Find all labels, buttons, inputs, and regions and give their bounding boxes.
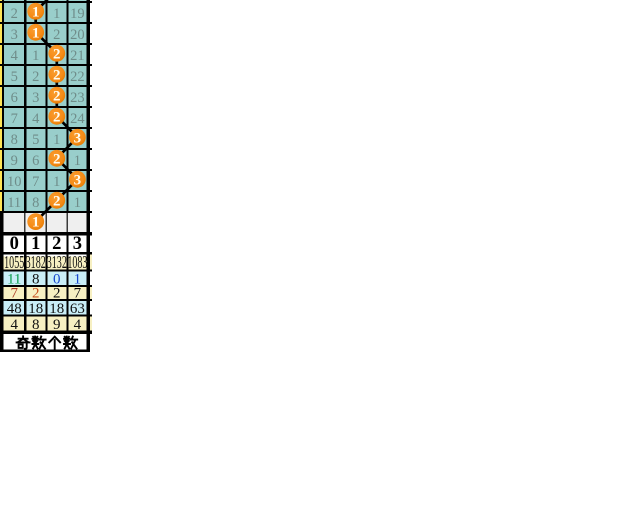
svg-text:10: 10 bbox=[7, 174, 22, 190]
svg-text:8: 8 bbox=[32, 195, 39, 211]
svg-text:1: 1 bbox=[32, 48, 39, 64]
svg-text:2: 2 bbox=[53, 193, 61, 209]
svg-text:23: 23 bbox=[70, 90, 85, 106]
svg-text:3132: 3132 bbox=[47, 253, 67, 273]
svg-text:2: 2 bbox=[32, 69, 39, 85]
svg-text:3: 3 bbox=[73, 234, 82, 254]
svg-text:48: 48 bbox=[7, 301, 22, 317]
svg-text:2: 2 bbox=[52, 234, 61, 254]
svg-text:20: 20 bbox=[70, 27, 85, 43]
svg-text:2: 2 bbox=[11, 6, 18, 22]
svg-text:9: 9 bbox=[53, 317, 61, 333]
svg-text:2: 2 bbox=[53, 151, 61, 167]
svg-text:4: 4 bbox=[10, 317, 18, 333]
svg-text:1: 1 bbox=[31, 234, 40, 254]
svg-text:11: 11 bbox=[7, 195, 21, 211]
svg-text:6: 6 bbox=[11, 90, 18, 106]
svg-text:1: 1 bbox=[74, 153, 81, 169]
svg-text:21: 21 bbox=[70, 48, 85, 64]
svg-text:5: 5 bbox=[11, 69, 18, 85]
svg-text:1: 1 bbox=[53, 6, 60, 22]
svg-text:0: 0 bbox=[10, 234, 19, 254]
svg-text:1055: 1055 bbox=[4, 253, 24, 273]
svg-text:7: 7 bbox=[11, 111, 18, 127]
svg-text:1: 1 bbox=[32, 25, 40, 41]
svg-text:8: 8 bbox=[11, 132, 18, 148]
svg-text:18: 18 bbox=[49, 301, 64, 317]
svg-text:2: 2 bbox=[53, 88, 61, 104]
svg-text:4: 4 bbox=[74, 317, 82, 333]
svg-text:3: 3 bbox=[32, 90, 39, 106]
svg-text:3: 3 bbox=[74, 130, 82, 146]
svg-text:2: 2 bbox=[53, 67, 61, 83]
svg-text:2: 2 bbox=[53, 286, 61, 302]
svg-text:22: 22 bbox=[70, 69, 85, 85]
svg-text:3: 3 bbox=[74, 172, 82, 188]
svg-text:2: 2 bbox=[53, 109, 61, 125]
svg-text:1083: 1083 bbox=[67, 253, 87, 273]
svg-text:2: 2 bbox=[32, 286, 40, 302]
svg-text:2: 2 bbox=[53, 46, 61, 62]
svg-text:24: 24 bbox=[70, 111, 85, 127]
svg-text:3: 3 bbox=[11, 27, 18, 43]
svg-text:7: 7 bbox=[32, 174, 39, 190]
svg-text:7: 7 bbox=[74, 286, 82, 302]
svg-text:63: 63 bbox=[70, 301, 85, 317]
svg-text:6: 6 bbox=[32, 153, 39, 169]
svg-text:1: 1 bbox=[53, 174, 60, 190]
svg-text:7: 7 bbox=[10, 286, 18, 302]
svg-text:18: 18 bbox=[28, 301, 43, 317]
svg-text:1: 1 bbox=[74, 195, 81, 211]
svg-text:1: 1 bbox=[53, 132, 60, 148]
svg-text:9: 9 bbox=[11, 153, 18, 169]
svg-text:2: 2 bbox=[53, 27, 60, 43]
svg-text:5: 5 bbox=[32, 132, 39, 148]
svg-text:1: 1 bbox=[32, 215, 40, 231]
svg-text:19: 19 bbox=[70, 6, 85, 22]
svg-text:3182: 3182 bbox=[26, 253, 46, 273]
svg-text:8: 8 bbox=[32, 317, 40, 333]
svg-text:4: 4 bbox=[32, 111, 40, 127]
svg-text:4: 4 bbox=[11, 48, 19, 64]
svg-text:1: 1 bbox=[32, 4, 40, 20]
